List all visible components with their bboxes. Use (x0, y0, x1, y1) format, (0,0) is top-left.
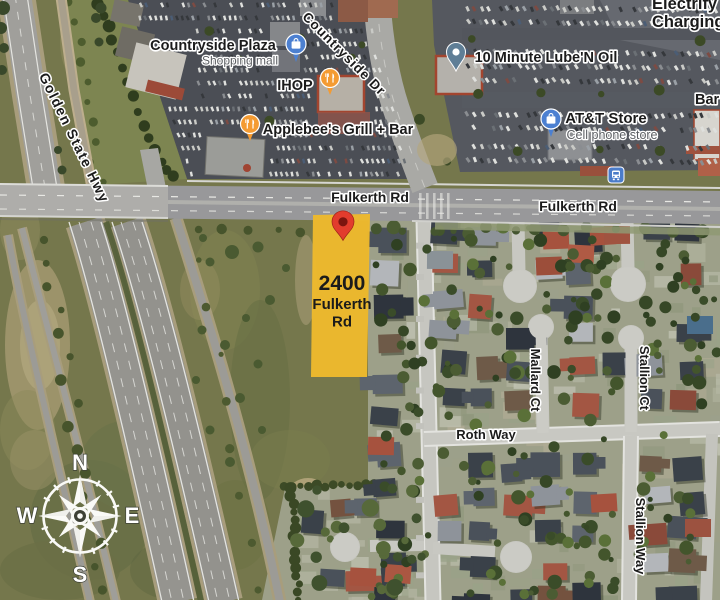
svg-text:Applebee's Grill + Bar: Applebee's Grill + Bar (263, 122, 414, 138)
svg-text:IHOP: IHOP (277, 78, 313, 94)
svg-text:S: S (73, 562, 88, 587)
svg-text:Countryside Plaza: Countryside Plaza (150, 38, 277, 54)
svg-text:2400: 2400 (319, 272, 366, 295)
svg-text:Fulkerth Rd: Fulkerth Rd (331, 189, 409, 205)
svg-text:Stallion Way: Stallion Way (633, 498, 648, 576)
svg-text:Fulkerth: Fulkerth (312, 296, 371, 313)
svg-text:E: E (125, 503, 140, 528)
svg-text:AT&T Store: AT&T Store (565, 110, 646, 127)
svg-text:W: W (17, 503, 38, 528)
svg-text:Cell phone store: Cell phone store (566, 128, 657, 142)
svg-text:Fulkerth Rd: Fulkerth Rd (539, 198, 617, 214)
svg-text:Shopping mall: Shopping mall (202, 54, 278, 68)
svg-text:Roth Way: Roth Way (456, 427, 516, 442)
svg-text:Bar: Bar (695, 92, 720, 108)
svg-text:Charging Sta: Charging Sta (652, 13, 720, 31)
svg-text:Mallard Ct: Mallard Ct (528, 349, 543, 413)
svg-text:10 Minute Lube'N Oil: 10 Minute Lube'N Oil (475, 50, 618, 66)
svg-text:Rd: Rd (332, 314, 352, 331)
svg-text:Electrify Am: Electrify Am (652, 0, 720, 13)
svg-text:N: N (72, 450, 88, 475)
svg-text:Stallion Ct: Stallion Ct (637, 346, 652, 411)
